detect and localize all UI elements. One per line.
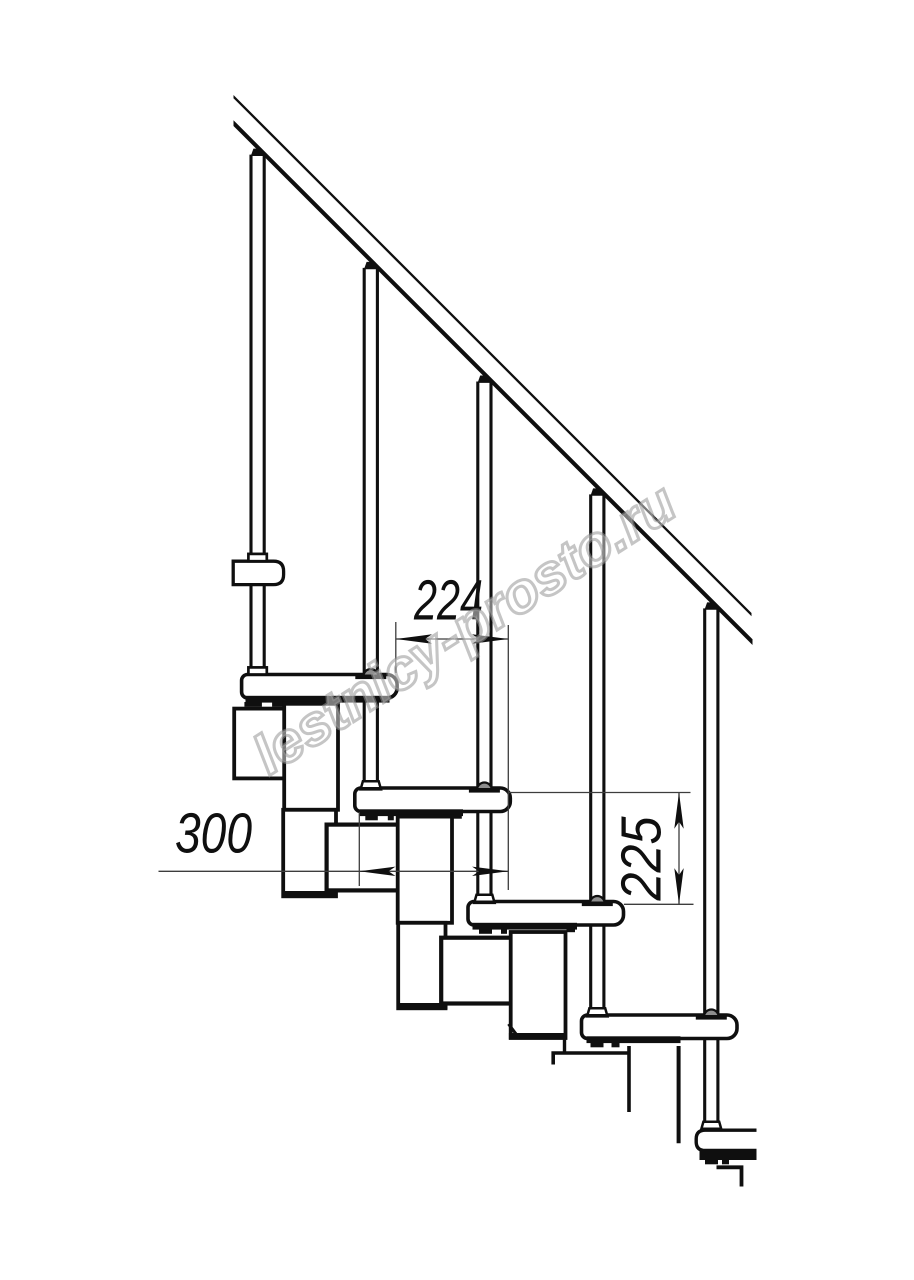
svg-text:lestnicy-prosto.ru: lestnicy-prosto.ru xyxy=(242,470,687,786)
svg-text:300: 300 xyxy=(175,802,252,866)
svg-text:225: 225 xyxy=(610,816,674,901)
